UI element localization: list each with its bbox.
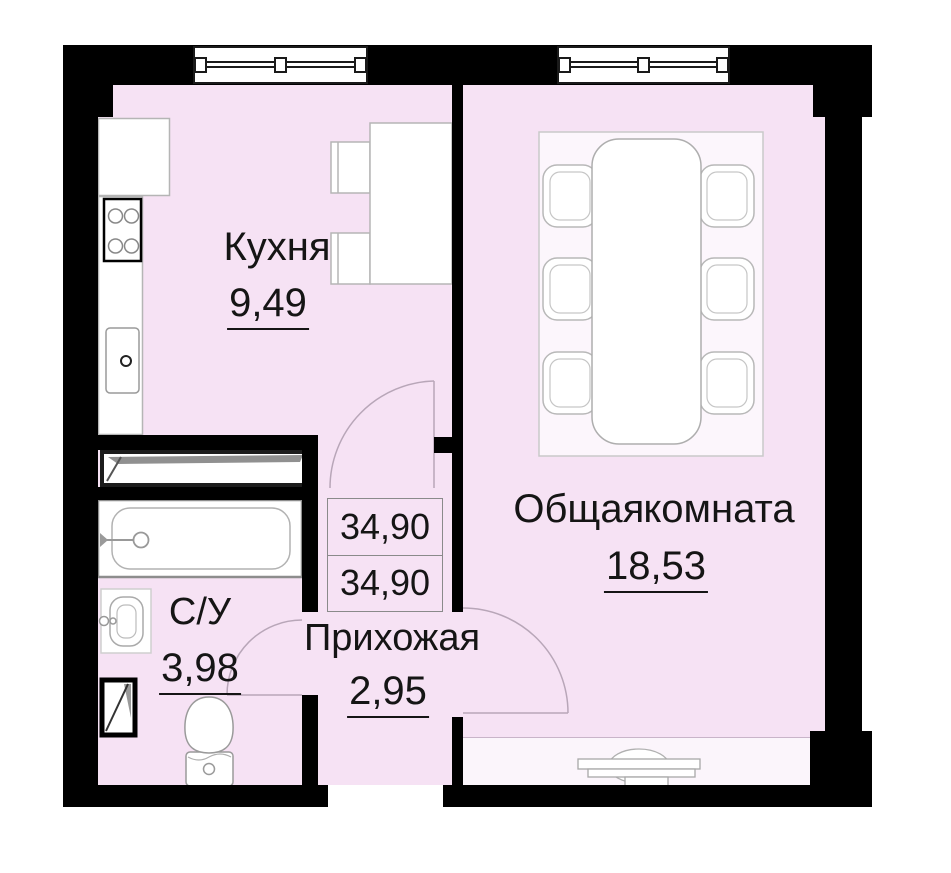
vent-shaft-icon	[102, 680, 135, 735]
room-label-bathroom: С/У	[169, 593, 231, 631]
room-label-hallway: Прихожая	[304, 619, 480, 657]
room-area-bathroom: 3,98	[159, 648, 241, 688]
wall-left	[63, 45, 98, 807]
pier-bottom-right	[810, 731, 872, 807]
wall-niche-bottom	[98, 487, 318, 500]
kitchen-sink-icon	[106, 328, 139, 393]
wall-right	[825, 117, 862, 731]
wall-bathroom-right-lower	[302, 695, 318, 785]
area-table-total: 34,90	[328, 499, 442, 556]
dining-table	[592, 139, 701, 444]
washbasin-icon	[100, 589, 152, 653]
room-label-living: Общая комната	[513, 489, 794, 529]
kitchen-chairs	[331, 142, 370, 284]
living-window	[557, 46, 730, 84]
room-label-kitchen: Кухня	[223, 227, 330, 267]
wall-stub-niche-right	[302, 435, 318, 500]
area-table-living: 34,90	[328, 556, 442, 612]
wall-bathroom-right-upper	[302, 500, 318, 612]
room-area-kitchen: 9,49	[227, 283, 309, 323]
window-mullion	[716, 57, 729, 73]
window-mullion	[637, 57, 650, 73]
wall-central-upper	[452, 85, 463, 612]
wall-kitchen-bottom	[98, 435, 318, 450]
pier-top-right	[813, 85, 872, 117]
entrance-door-symbol	[578, 749, 700, 789]
area-table: 34,90 34,90	[327, 498, 443, 612]
toilet-icon	[185, 697, 233, 786]
window-mullion	[558, 57, 571, 73]
kitchen-window	[193, 46, 368, 84]
wall-stub-kitchen-door	[434, 437, 452, 453]
wall-central-lower	[452, 717, 463, 785]
room-area-living: 18,53	[604, 546, 708, 586]
window-mullion	[354, 57, 367, 73]
wall-bottom-left	[63, 785, 328, 807]
wardrobe-shaft-icon	[102, 452, 309, 485]
window-mullion	[274, 57, 287, 73]
wall-bottom-right	[443, 785, 872, 807]
wall-top	[63, 45, 872, 85]
stove-icon	[104, 199, 141, 261]
window-mullion	[194, 57, 207, 73]
door-arc-kitchen	[330, 381, 434, 488]
floor-plan: Кухня 9,49 Общая комната 18,53 Прихожая …	[0, 0, 951, 873]
room-area-hallway: 2,95	[347, 671, 429, 711]
bathtub-icon	[98, 500, 302, 577]
pier-top-left	[98, 85, 113, 117]
kitchen-table	[370, 123, 452, 284]
